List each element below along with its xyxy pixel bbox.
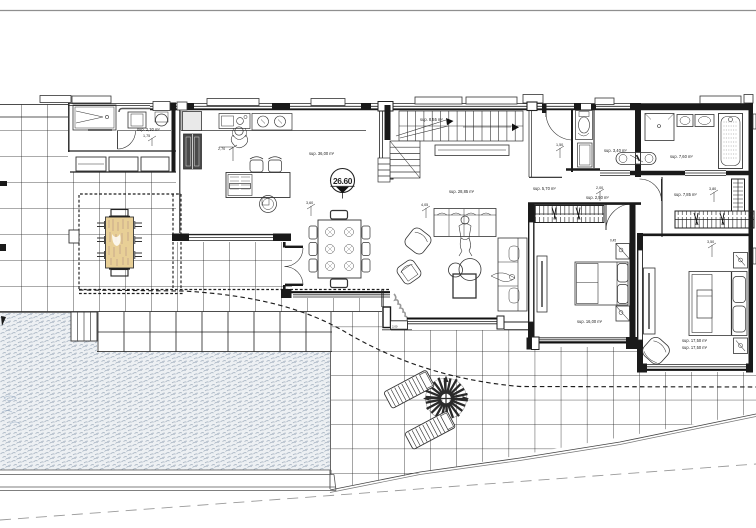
svg-text:1,75: 1,75 [143, 134, 150, 138]
svg-text:3,60: 3,60 [306, 201, 313, 205]
svg-text:sup. 5,70 m²: sup. 5,70 m² [533, 186, 556, 191]
svg-text:sup. 17,50 m²: sup. 17,50 m² [682, 338, 708, 343]
svg-text:3,50: 3,50 [707, 240, 714, 244]
svg-text:sup. 17,50 m²: sup. 17,50 m² [682, 345, 708, 350]
svg-text:sup. 16,00 m²: sup. 16,00 m² [577, 319, 603, 324]
svg-text:0,45: 0,45 [610, 239, 616, 243]
svg-text:sup. 2,50 m²: sup. 2,50 m² [586, 195, 609, 200]
svg-text:2,00: 2,00 [596, 186, 603, 190]
svg-text:3,80: 3,80 [709, 187, 716, 191]
svg-text:2,70: 2,70 [218, 147, 225, 151]
svg-text:sup. 36,00 m²: sup. 36,00 m² [309, 151, 335, 156]
svg-text:26.60: 26.60 [333, 176, 353, 186]
svg-text:4,05: 4,05 [421, 203, 428, 207]
svg-text:2,00: 2,00 [392, 325, 398, 329]
svg-text:sup. 7,85 m²: sup. 7,85 m² [674, 192, 697, 197]
svg-text:1,50: 1,50 [556, 143, 563, 147]
svg-text:sup. 2,30 m²: sup. 2,30 m² [137, 127, 160, 132]
svg-text:sup. 28,85 m²: sup. 28,85 m² [449, 189, 475, 194]
svg-text:sup. 8,55 m²: sup. 8,55 m² [420, 117, 443, 122]
svg-text:sup. 3,40 m²: sup. 3,40 m² [604, 148, 627, 153]
svg-text:sup. 7,60 m²: sup. 7,60 m² [670, 154, 693, 159]
